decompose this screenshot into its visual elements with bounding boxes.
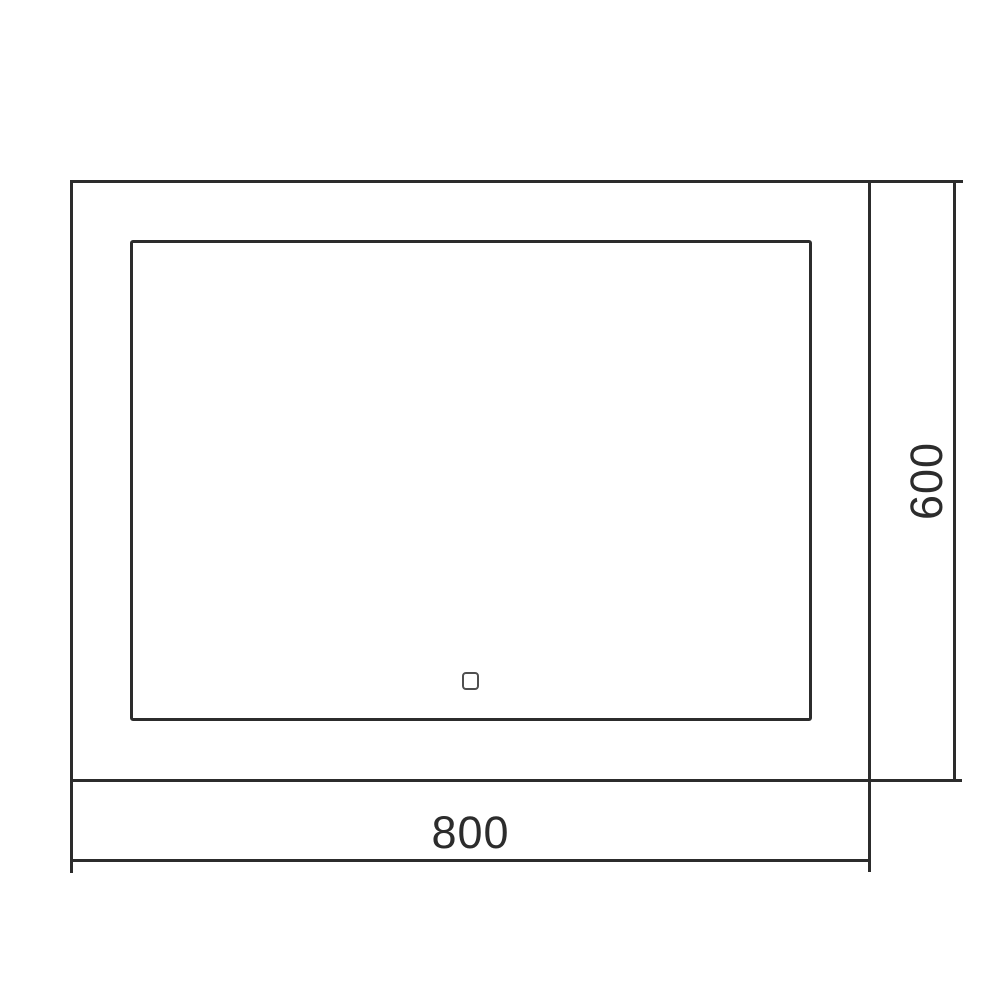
touch-sensor-icon	[462, 672, 479, 690]
extension-line-bottom-right	[868, 779, 962, 782]
width-dimension-label: 800	[70, 810, 871, 856]
extension-line-top-right	[871, 180, 963, 183]
height-dimension-line	[953, 180, 956, 782]
width-dimension-line	[70, 859, 871, 862]
height-dimension-label: 600	[904, 411, 950, 551]
mirror-inner-outline	[130, 240, 812, 721]
mirror-technical-drawing: 600 800	[0, 0, 1000, 1000]
